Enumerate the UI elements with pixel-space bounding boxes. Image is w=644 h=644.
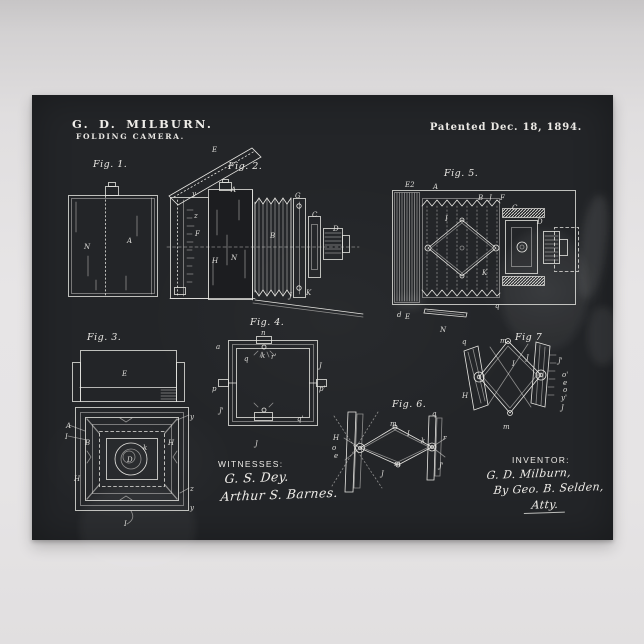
- svg-text:F: F: [499, 194, 506, 202]
- svg-text:H: H: [332, 434, 340, 442]
- svg-text:B: B: [477, 194, 483, 202]
- patent-poster: G. D. MILBURN. FOLDING CAMERA. Patented …: [32, 95, 613, 540]
- svg-text:N: N: [230, 254, 238, 262]
- svg-text:y': y': [560, 394, 567, 402]
- svg-text:C: C: [512, 204, 518, 212]
- svg-text:J: J: [379, 470, 385, 478]
- svg-text:y: y: [189, 504, 195, 512]
- svg-text:D: D: [536, 218, 543, 226]
- svg-text:J: J: [253, 440, 259, 448]
- figure-drawing-7-lazy-tongs-extended: qmIJHJ'o'eoy'Jm: [457, 325, 607, 450]
- svg-text:m: m: [503, 423, 510, 431]
- witness-signature-1: G. S. Dey.: [224, 469, 290, 486]
- svg-text:B: B: [84, 439, 90, 447]
- svg-text:z: z: [193, 212, 198, 220]
- svg-text:I: I: [511, 360, 515, 368]
- svg-text:N: N: [83, 243, 91, 251]
- svg-text:C: C: [312, 211, 318, 219]
- svg-text:J': J': [556, 357, 563, 365]
- svg-text:H: H: [73, 475, 81, 483]
- svg-text:J: J: [287, 292, 293, 300]
- svg-text:m: m: [394, 460, 401, 468]
- svg-text:e: e: [334, 452, 338, 460]
- svg-text:p: p: [212, 385, 217, 393]
- svg-text:m: m: [390, 420, 397, 428]
- svg-text:n: n: [261, 329, 266, 337]
- svg-text:I: I: [406, 430, 410, 438]
- svg-text:y: y: [189, 413, 195, 421]
- svg-text:I: I: [444, 215, 448, 223]
- svg-text:d: d: [397, 311, 402, 319]
- inventor-label: INVENTOR:: [512, 455, 570, 465]
- svg-text:G: G: [295, 192, 301, 200]
- svg-text:p': p': [319, 385, 325, 393]
- figure-caption-3: Fig. 3.: [87, 332, 121, 343]
- svg-text:D: D: [126, 456, 133, 464]
- svg-text:k: k: [143, 444, 147, 452]
- svg-text:H: H: [211, 257, 219, 265]
- svg-text:D: D: [332, 225, 339, 233]
- figure-drawing-6-lazy-tongs-collapsed: HqImmkrJ'Joe: [332, 400, 467, 505]
- patent-title: G. D. MILBURN.: [72, 117, 213, 131]
- svg-text:E: E: [211, 146, 217, 154]
- patent-date: Patented Dec. 18, 1894.: [430, 122, 582, 133]
- svg-text:A: A: [230, 186, 236, 194]
- svg-text:m: m: [500, 337, 507, 345]
- svg-text:A: A: [126, 237, 132, 245]
- svg-text:q: q: [462, 338, 467, 346]
- svg-text:o': o': [562, 371, 568, 379]
- svg-text:r': r': [271, 353, 276, 361]
- figure-caption-1: Fig. 1.: [93, 159, 127, 170]
- svg-text:q: q: [495, 302, 500, 310]
- svg-text:F: F: [194, 230, 201, 238]
- svg-text:K: K: [481, 269, 488, 277]
- svg-text:A: A: [65, 422, 71, 430]
- svg-text:a: a: [216, 343, 220, 351]
- figure-drawing-3-front-view: EyAIBHkHDzyI: [65, 343, 235, 578]
- svg-text:y: y: [191, 190, 197, 198]
- figure-drawing-1-camera-box: NA: [62, 180, 167, 302]
- figure-drawing-4-frame-latches: naqJpp'J'q'Jkr': [212, 320, 327, 448]
- svg-text:J: J: [559, 404, 565, 412]
- attorney-title: Atty.: [524, 498, 566, 512]
- svg-text:H: H: [461, 392, 469, 400]
- svg-text:I: I: [64, 433, 68, 441]
- witness-signature-2: Arthur S. Barnes.: [220, 485, 339, 504]
- svg-text:J': J': [217, 407, 224, 415]
- attorney-by-signature: By Geo. B. Selden,: [493, 480, 605, 497]
- svg-text:J': J': [437, 462, 444, 470]
- poster-photo-background: G. D. MILBURN. FOLDING CAMERA. Patented …: [0, 0, 644, 644]
- svg-text:A: A: [432, 183, 438, 191]
- svg-text:o: o: [332, 444, 336, 452]
- svg-text:q: q: [432, 410, 437, 418]
- svg-text:B: B: [269, 232, 275, 240]
- figure-drawing-5-sectional-plan: E2ABJFIKCDqdEN: [382, 170, 612, 335]
- svg-text:E: E: [404, 313, 410, 321]
- svg-text:k: k: [421, 437, 425, 445]
- svg-text:z: z: [189, 485, 194, 493]
- svg-text:K: K: [305, 289, 312, 297]
- svg-text:q': q': [297, 415, 303, 423]
- svg-text:N: N: [439, 326, 447, 334]
- svg-text:o: o: [563, 386, 567, 394]
- svg-text:q: q: [244, 355, 249, 363]
- witnesses-label: WITNESSES:: [218, 459, 283, 469]
- inventor-signature: G. D. Milburn,: [486, 466, 572, 482]
- figure-drawing-2-folding-camera-side: EyAzFHNBGCDJK: [167, 140, 367, 322]
- svg-text:k: k: [261, 352, 265, 360]
- svg-text:E2: E2: [404, 181, 415, 189]
- svg-text:H: H: [167, 439, 175, 447]
- svg-text:E: E: [121, 370, 127, 378]
- svg-text:I: I: [123, 520, 127, 528]
